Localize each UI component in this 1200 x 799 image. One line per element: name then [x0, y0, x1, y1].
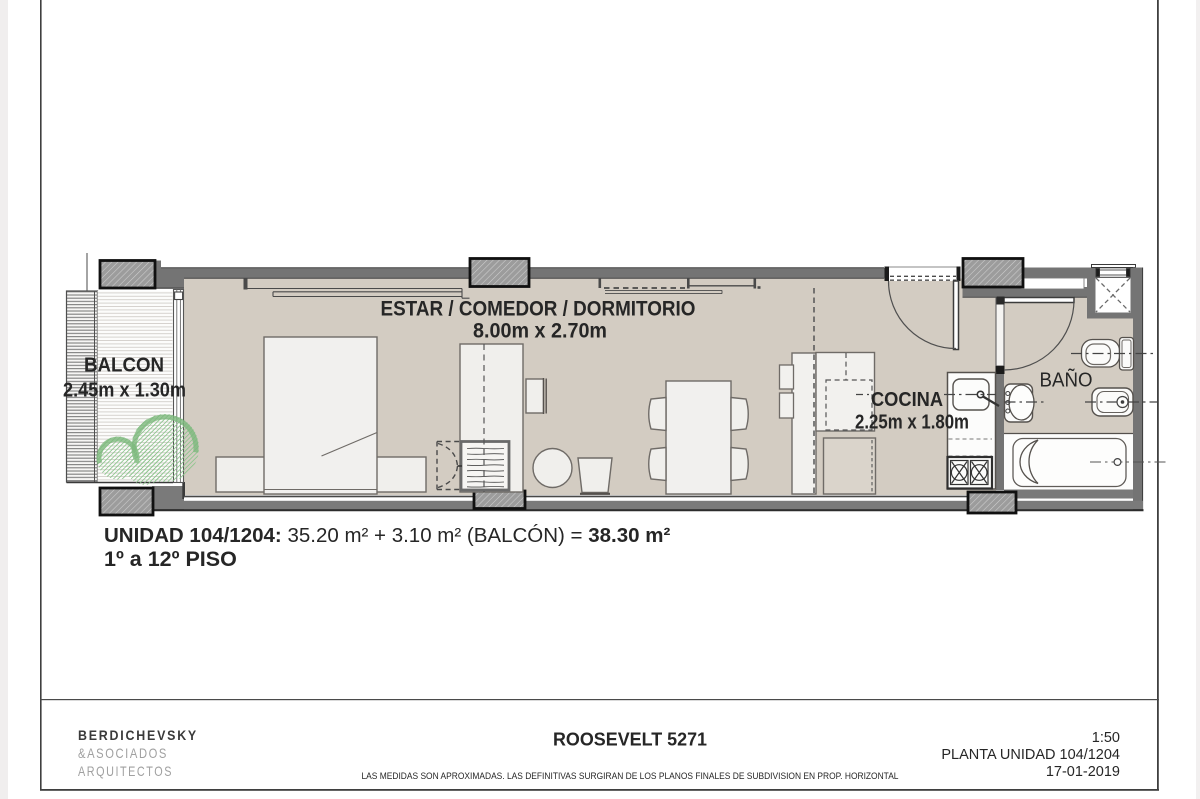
svg-text:&ASOCIADOS: &ASOCIADOS [78, 745, 168, 761]
svg-text:8.00m x 2.70m: 8.00m x 2.70m [473, 320, 607, 343]
svg-text:1º a 12º PISO: 1º a 12º PISO [104, 547, 237, 571]
svg-text:1:50: 1:50 [1092, 730, 1120, 746]
svg-text:2.25m x 1.80m: 2.25m x 1.80m [855, 411, 969, 434]
svg-text:UNIDAD 104/1204: 35.20 m² + 3.: UNIDAD 104/1204: 35.20 m² + 3.10 m² (BAL… [104, 524, 670, 547]
svg-text:PLANTA UNIDAD 104/1204: PLANTA UNIDAD 104/1204 [941, 747, 1120, 763]
svg-text:2.45m x 1.30m: 2.45m x 1.30m [63, 379, 186, 402]
svg-text:BERDICHEVSKY: BERDICHEVSKY [78, 727, 198, 743]
svg-text:17-01-2019: 17-01-2019 [1046, 764, 1120, 780]
svg-text:LAS MEDIDAS SON APROXIMADAS. L: LAS MEDIDAS SON APROXIMADAS. LAS DEFINIT… [362, 771, 899, 782]
svg-text:COCINA: COCINA [871, 388, 943, 411]
svg-text:ROOSEVELT 5271: ROOSEVELT 5271 [553, 729, 707, 750]
svg-text:BAÑO: BAÑO [1040, 369, 1093, 392]
svg-text:BALCON: BALCON [84, 354, 164, 377]
svg-text:ARQUITECTOS: ARQUITECTOS [78, 763, 173, 779]
svg-text:ESTAR / COMEDOR / DORMITORIO: ESTAR / COMEDOR / DORMITORIO [381, 298, 696, 321]
